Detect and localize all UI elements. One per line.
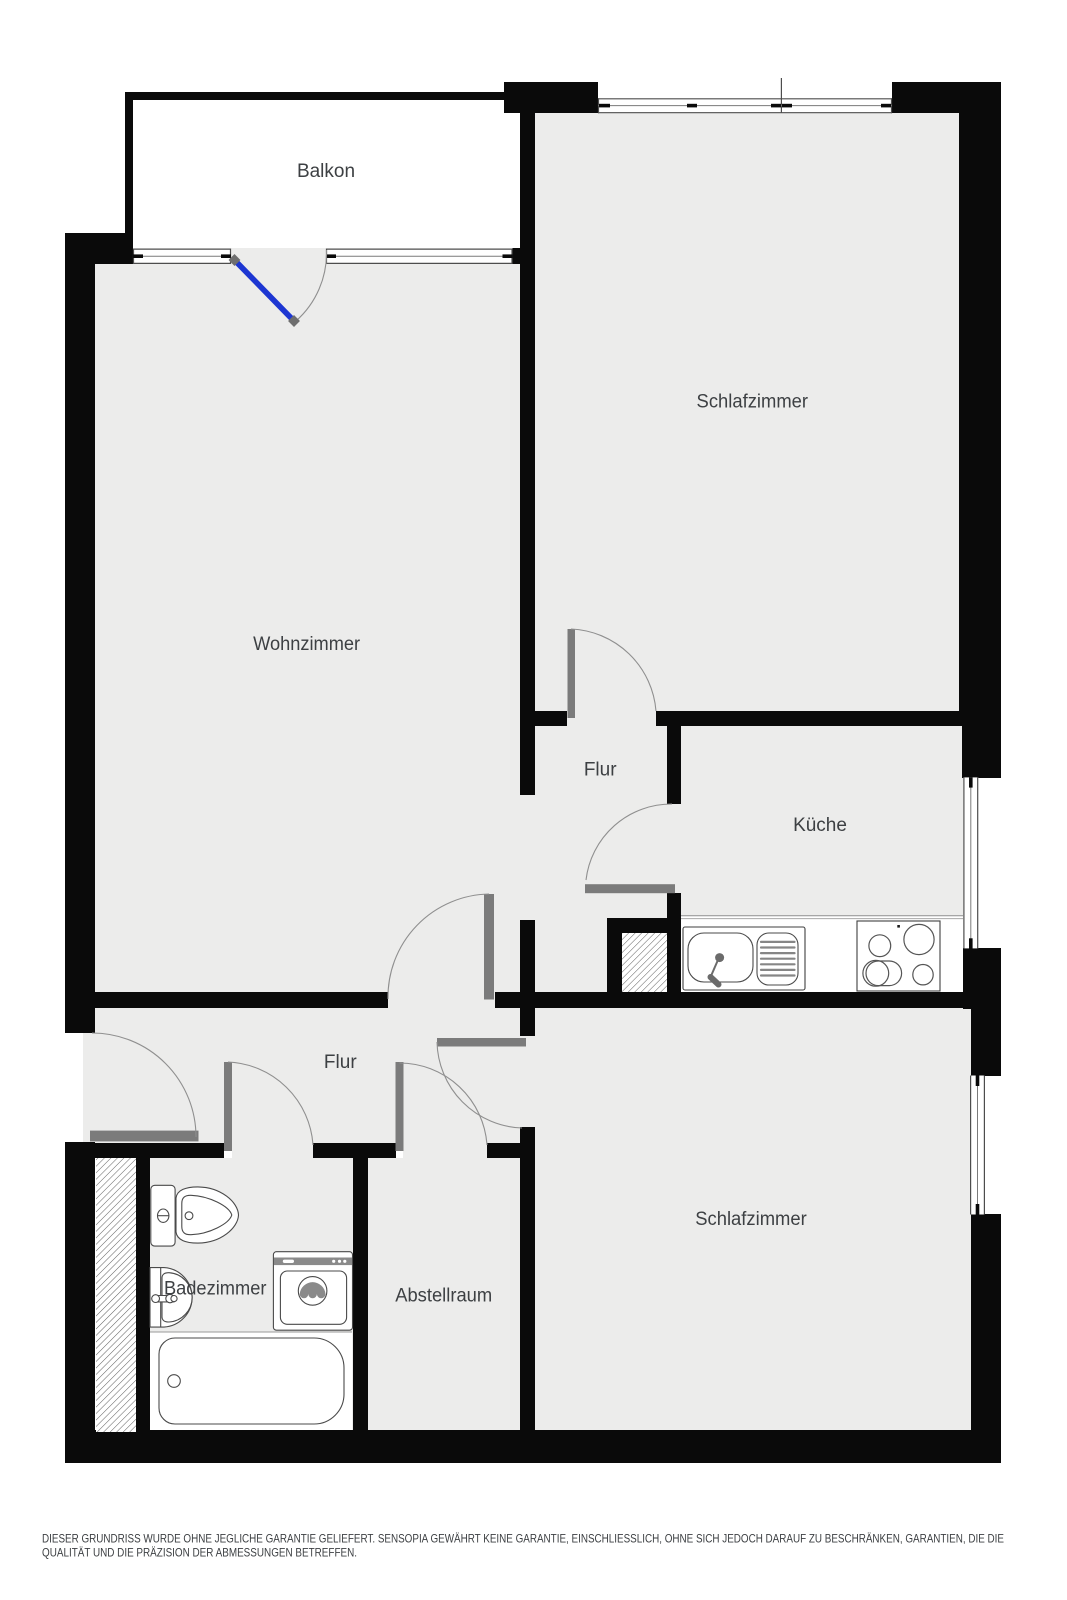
svg-text:Flur: Flur	[584, 759, 617, 780]
svg-text:Wohnzimmer: Wohnzimmer	[253, 634, 361, 655]
svg-text:Schlafzimmer: Schlafzimmer	[695, 1209, 807, 1230]
svg-text:Küche: Küche	[793, 815, 847, 836]
svg-text:QUALITÄT UND DIE PRÄZISION DER: QUALITÄT UND DIE PRÄZISION DER ABMESSUNG…	[42, 1545, 357, 1559]
svg-text:Abstellraum: Abstellraum	[395, 1286, 492, 1307]
svg-text:Schlafzimmer: Schlafzimmer	[697, 391, 809, 412]
svg-text:DIESER GRUNDRISS WURDE OHNE JE: DIESER GRUNDRISS WURDE OHNE JEGLICHE GAR…	[42, 1532, 1004, 1546]
svg-text:Balkon: Balkon	[297, 161, 355, 182]
svg-text:Badezimmer: Badezimmer	[164, 1278, 267, 1299]
svg-text:Flur: Flur	[324, 1052, 357, 1073]
